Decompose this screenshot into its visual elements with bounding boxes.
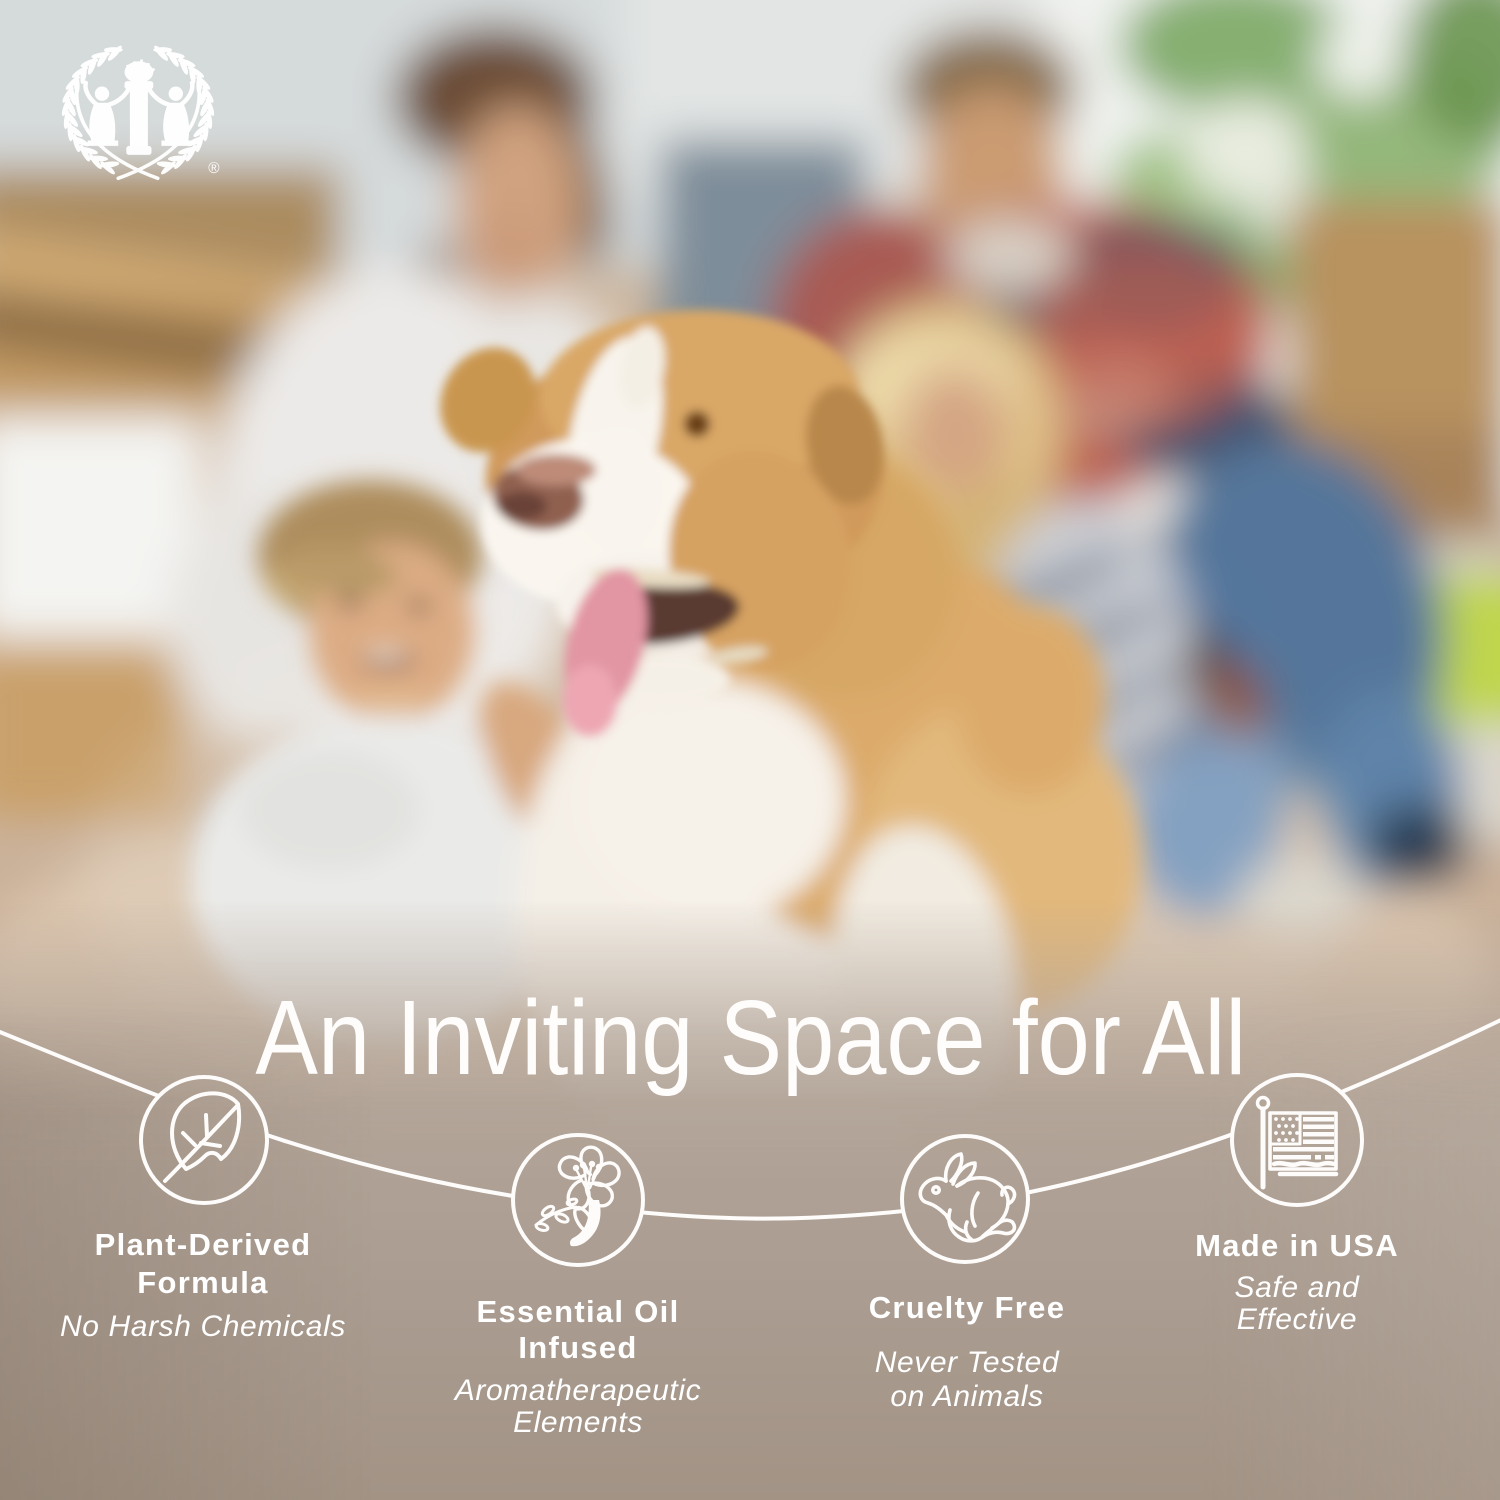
svg-text:®: ® [208,160,220,177]
